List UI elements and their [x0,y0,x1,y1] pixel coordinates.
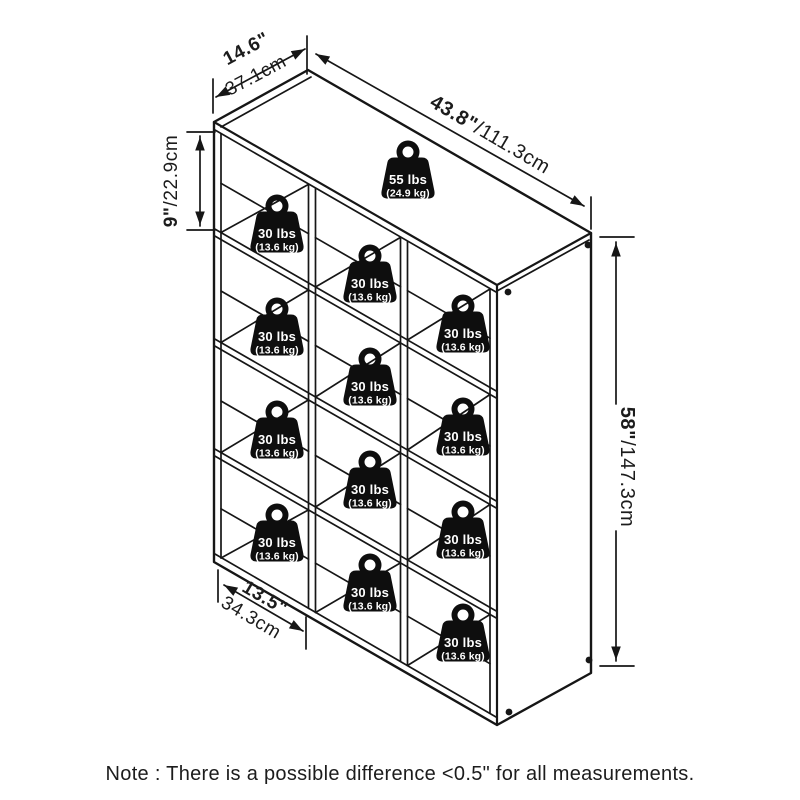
dim-width-line [316,54,584,206]
arrowhead [291,49,305,60]
arrowhead [570,195,584,206]
weight-kg-label: (13.6 kg) [441,548,485,560]
weight-lbs-label: 30 lbs [444,635,482,650]
product-dimension-diagram: 14.6" 37.1cm 43.8"/111.3cm 9"/22.9cm [0,0,800,800]
weight-kg-label: (13.6 kg) [348,395,392,407]
screw-hole [506,709,513,716]
weight-capacity-icon-cube: 30 lbs(13.6 kg) [343,348,396,407]
weight-lbs-label: 30 lbs [444,532,482,547]
weight-lbs-label: 30 lbs [258,329,296,344]
weight-lbs-label: 30 lbs [351,379,389,394]
weight-kg-label: (13.6 kg) [348,601,392,613]
arrowhead [195,137,205,151]
weight-capacity-icon-cube: 30 lbs(13.6 kg) [250,504,303,563]
weight-kg-label: (13.6 kg) [348,498,392,510]
dim-height-inches: 58" [616,407,638,441]
side-top-inner [497,240,589,291]
dim-width [316,54,591,229]
arrowhead [611,243,621,257]
weight-kg-label: (13.6 kg) [255,345,299,357]
weight-kg-label: (13.6 kg) [255,242,299,254]
arrowhead [195,212,205,226]
weight-capacity-icon-cube: 30 lbs(13.6 kg) [250,195,303,254]
diagram-canvas: 14.6" 37.1cm 43.8"/111.3cm 9"/22.9cm [0,0,800,800]
weight-capacity-icon-cube: 30 lbs(13.6 kg) [343,245,396,304]
weight-lbs-label: 30 lbs [258,432,296,447]
weight-capacity-icon-cube: 30 lbs(13.6 kg) [436,295,489,354]
dim-height-cm: /147.3cm [616,440,638,527]
screw-hole [505,289,512,296]
weight-kg-label: (13.6 kg) [441,651,485,663]
weight-kg-label: (13.6 kg) [255,551,299,563]
weight-lbs-label: 30 lbs [351,276,389,291]
weight-lbs-label: 30 lbs [351,482,389,497]
measurement-note: Note : There is a possible difference <0… [0,763,800,786]
weight-lbs-label: 30 lbs [444,326,482,341]
weight-kg-label: (13.6 kg) [255,448,299,460]
dim-height-label: 58"/147.3cm [616,407,638,528]
weight-capacity-icon-cube: 30 lbs(13.6 kg) [250,401,303,460]
weight-capacity-icon-cube: 30 lbs(13.6 kg) [343,554,396,613]
weight-capacity-icon-cube: 30 lbs(13.6 kg) [436,398,489,457]
arrowhead [316,54,330,65]
weight-capacity-icon-cube: 30 lbs(13.6 kg) [250,298,303,357]
arrowhead [289,620,303,631]
dim-cube-height-text: 9"/22.9cm [161,135,182,228]
weight-kg-label: (13.6 kg) [348,292,392,304]
weight-kg-label: (13.6 kg) [441,445,485,457]
dim-cube-height-cm: /22.9cm [161,135,182,207]
dim-height-text: 58"/147.3cm [616,407,638,528]
weight-capacity-icon-cube: 30 lbs(13.6 kg) [436,604,489,663]
screw-hole [586,657,593,664]
dim-depth-label: 14.6" 37.1cm [209,26,290,100]
weight-lbs-label: 55 lbs [389,172,427,187]
screw-hole [585,242,592,249]
dim-cube-width-label: 13.5" 34.3cm [217,571,297,643]
weight-lbs-label: 30 lbs [258,535,296,550]
arrowhead [611,647,621,661]
dim-width-label: 43.8"/111.3cm [426,91,554,179]
weight-lbs-label: 30 lbs [258,226,296,241]
weight-lbs-label: 30 lbs [444,429,482,444]
weight-kg-label: (24.9 kg) [386,188,430,200]
dim-cube-height-label: 9"/22.9cm [161,135,182,228]
side-top-edge [497,233,591,285]
dim-width-text: 43.8"/111.3cm [426,91,554,179]
weight-capacity-icon-cube: 30 lbs(13.6 kg) [343,451,396,510]
weight-capacity-icon-top: 55 lbs(24.9 kg) [381,141,434,200]
dim-cube-height-inches: 9" [161,207,182,228]
screw-holes [505,242,593,716]
weight-lbs-label: 30 lbs [351,585,389,600]
weight-kg-label: (13.6 kg) [441,342,485,354]
